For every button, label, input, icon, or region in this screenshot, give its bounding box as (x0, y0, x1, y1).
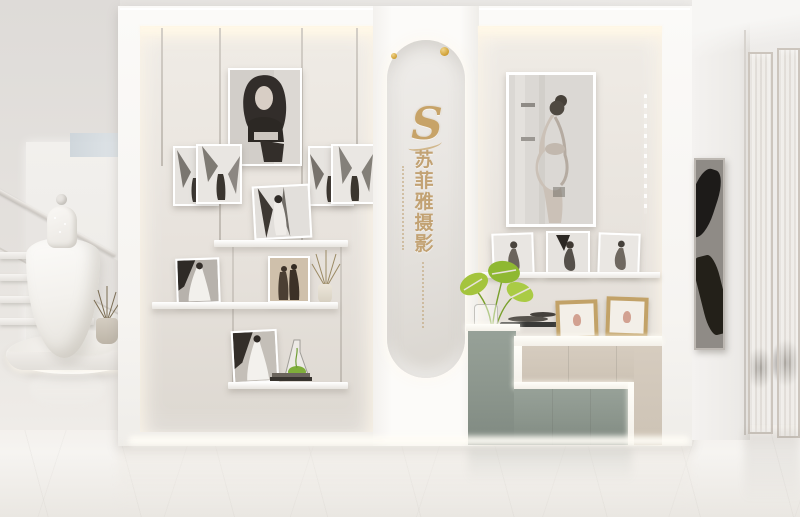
fluted-glass-partition (777, 48, 800, 438)
fluted-glass-partition (748, 52, 773, 434)
cabinet-step-stripe (514, 346, 522, 386)
door-seam (568, 346, 569, 382)
photo-maternity-large (506, 72, 596, 227)
photo-maternity-small (546, 231, 590, 275)
door-seam (616, 346, 617, 382)
led-strip (478, 26, 662, 38)
base-led-glow (128, 436, 690, 446)
floating-shelf (214, 240, 348, 247)
dark-abstract-artwork (694, 158, 725, 350)
dark-bowl (530, 312, 556, 317)
dried-flower-stems (308, 248, 344, 288)
studio-interior-photo: S 苏 菲 雅 摄 影 (0, 0, 800, 517)
brand-char: 苏 (414, 150, 433, 170)
brand-char: 雅 (414, 192, 433, 212)
wall-corner-edge (744, 30, 746, 435)
brand-name-vertical: 苏 菲 雅 摄 影 (407, 150, 441, 254)
mannequin-head (56, 194, 67, 205)
brand-subtext-decor (422, 262, 424, 328)
book-stack (272, 373, 310, 377)
gold-dot (440, 47, 449, 56)
cabinet-green-column (468, 331, 516, 445)
floating-shelf (152, 302, 338, 309)
brand-subtext-decor (402, 166, 404, 250)
plant-pot (96, 318, 118, 344)
cabinet-counter-edge (514, 336, 662, 346)
photo-small-print (196, 144, 242, 204)
window-pane (70, 133, 118, 157)
book-stack (270, 377, 312, 381)
brand-char: 摄 (414, 213, 433, 233)
brand-char: 影 (414, 234, 433, 254)
photo-leaning-wedding (252, 184, 313, 241)
brand-char: 菲 (414, 171, 433, 191)
dress-reflection (30, 368, 104, 410)
cabinet-step-stripe (514, 382, 628, 389)
wooden-photo-frame (555, 299, 598, 340)
wedding-dress-bodice (47, 206, 77, 248)
gold-dot (391, 53, 397, 59)
cabinet-reflection (468, 448, 632, 482)
ceramic-vase (318, 284, 332, 304)
partition-reflection (744, 432, 800, 502)
hanging-rod (161, 28, 163, 166)
cabinet-beige-column (634, 346, 662, 445)
photo-couple (268, 256, 310, 303)
photo-maternity-small (597, 232, 640, 275)
photo-bride (175, 257, 221, 305)
led-strip (140, 26, 373, 38)
wooden-photo-frame (605, 296, 648, 337)
photo-small-print (331, 144, 375, 204)
cabinet-counter-edge (466, 324, 520, 331)
hanging-crystal-strand (644, 94, 647, 214)
hanging-rod (219, 28, 221, 242)
floating-shelf (228, 382, 348, 389)
